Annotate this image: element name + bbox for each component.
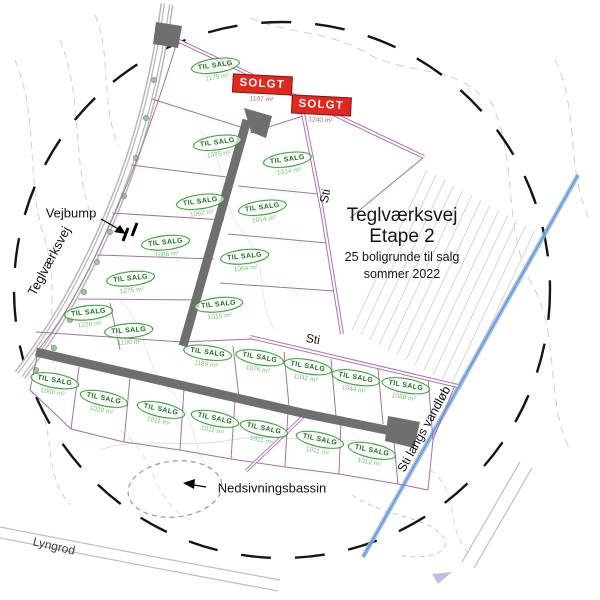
sti-upper-label: Sti: [317, 188, 333, 204]
sold-plot-marker: SOLGT1107 m²: [231, 73, 292, 104]
bottom-right-track: [462, 462, 532, 568]
sti-lower-label: Sti: [305, 331, 321, 347]
plot-area-label: 1240 m²: [308, 117, 333, 125]
plan-title-line2: Etape 2: [327, 226, 477, 247]
sold-plot-marker: SOLGT1240 m²: [290, 94, 351, 125]
til-salg-ellipse: TIL SALG: [104, 322, 154, 340]
plot-area-label: 1107 m²: [249, 96, 273, 104]
for-sale-plot-marker: TIL SALG1100 m²: [104, 322, 154, 349]
solgt-badge: SOLGT: [232, 73, 293, 95]
plan-title-line1: Teglværksvej: [327, 205, 477, 226]
plan-title-line4: sommer 2022: [327, 266, 477, 282]
basin-arrow: [183, 479, 206, 489]
basin-outline: [125, 456, 224, 522]
plan-title-line3: 25 boligrunde til salg: [327, 249, 477, 266]
nedsivningsbassin-label: Nedsivningsbassin: [218, 481, 326, 496]
plan-title-block: Teglværksvej Etape 2 25 boligrunde til s…: [327, 205, 477, 282]
solgt-badge: SOLGT: [291, 94, 352, 116]
site-plan-basemap: [0, 0, 600, 600]
site-plan-map: Vejbump Teglværksvej Sti Sti Sti langs v…: [0, 0, 600, 600]
stream-artifact-triangle: [432, 572, 452, 584]
vejbump-label: Vejbump: [46, 206, 97, 221]
